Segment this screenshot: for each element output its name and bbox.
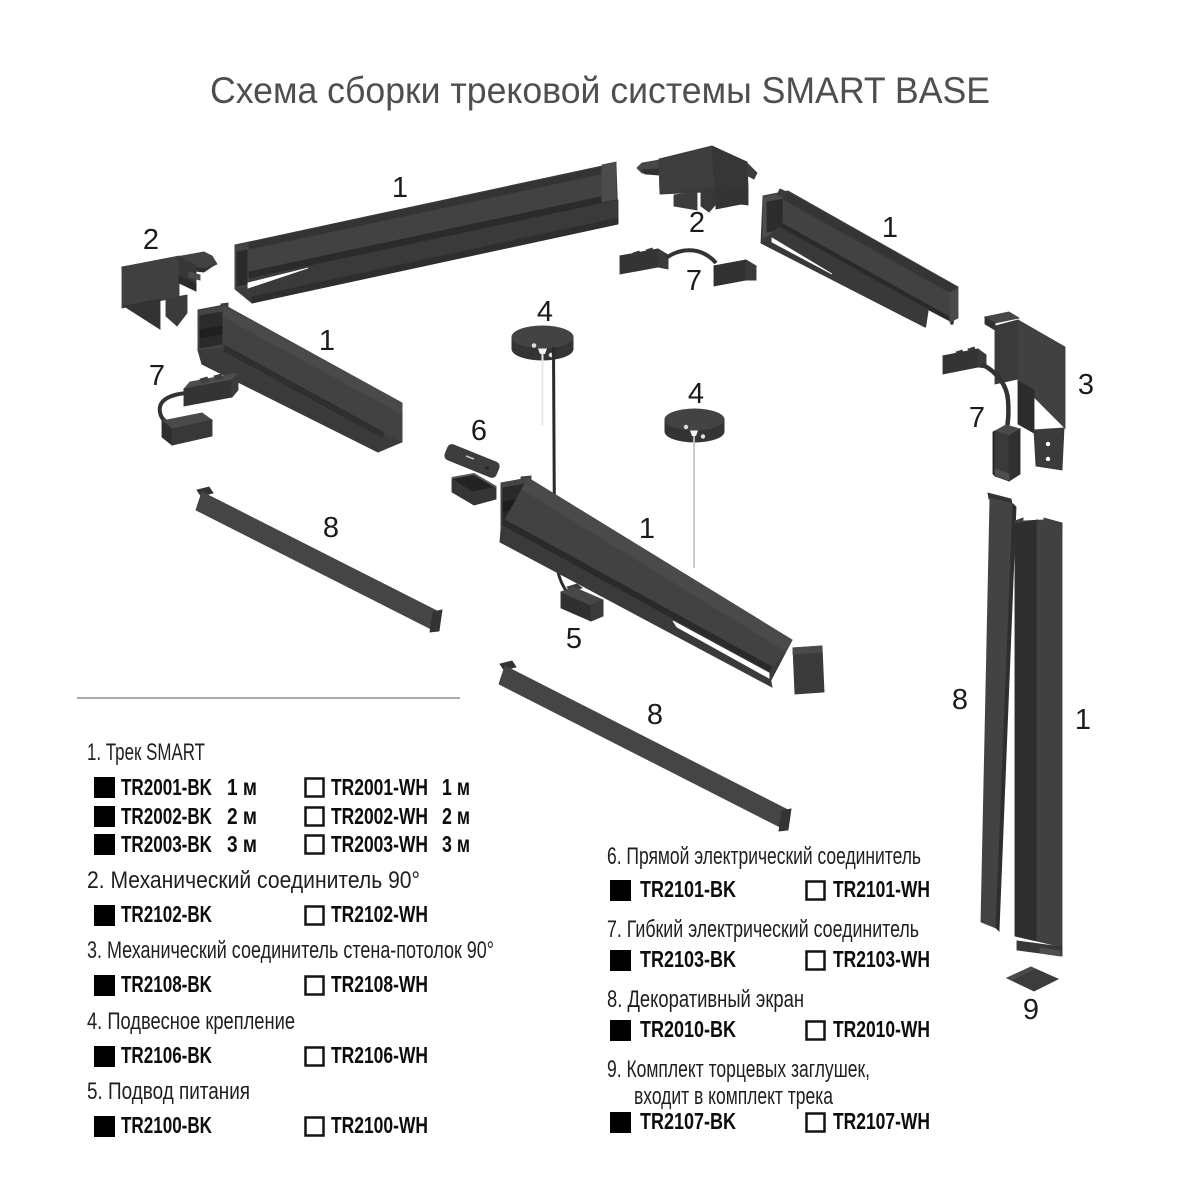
svg-text:3 м: 3 м bbox=[227, 831, 257, 857]
svg-text:1: 1 bbox=[392, 172, 408, 204]
svg-text:TR2103-WH: TR2103-WH bbox=[833, 946, 930, 972]
svg-text:4. Подвесное крепление: 4. Подвесное крепление bbox=[87, 1008, 295, 1035]
svg-text:2 м: 2 м bbox=[442, 803, 470, 829]
svg-text:6. Прямой электрический соедин: 6. Прямой электрический соединитель bbox=[607, 843, 921, 870]
svg-text:6: 6 bbox=[471, 415, 487, 447]
svg-text:1 м: 1 м bbox=[227, 774, 257, 800]
svg-text:7: 7 bbox=[686, 265, 702, 297]
svg-text:Схема сборки трековой системы: Схема сборки трековой системы SMART BASE bbox=[210, 70, 990, 111]
svg-text:8: 8 bbox=[323, 512, 339, 544]
svg-text:TR2010-BK: TR2010-BK bbox=[640, 1016, 736, 1042]
svg-text:TR2003-WH: TR2003-WH bbox=[331, 831, 428, 857]
svg-text:8: 8 bbox=[952, 684, 968, 716]
svg-text:TR2102-WH: TR2102-WH bbox=[331, 901, 428, 927]
svg-text:TR2010-WH: TR2010-WH bbox=[833, 1016, 930, 1042]
svg-text:3. Механический соединитель ст: 3. Механический соединитель стена-потоло… bbox=[87, 937, 494, 964]
svg-text:5. Подвод питания: 5. Подвод питания bbox=[87, 1078, 250, 1105]
svg-text:8. Декоративный экран: 8. Декоративный экран bbox=[607, 986, 804, 1013]
svg-text:7: 7 bbox=[149, 360, 165, 392]
svg-text:TR2003-BK: TR2003-BK bbox=[121, 831, 212, 857]
svg-text:4: 4 bbox=[537, 296, 553, 328]
svg-text:1: 1 bbox=[319, 325, 335, 357]
svg-text:2: 2 bbox=[689, 207, 705, 239]
svg-text:TR2100-BK: TR2100-BK bbox=[121, 1112, 212, 1138]
svg-text:TR2106-WH: TR2106-WH bbox=[331, 1042, 428, 1068]
svg-text:TR2101-WH: TR2101-WH bbox=[833, 876, 930, 902]
svg-text:входит в комплект трека: входит в комплект трека bbox=[634, 1083, 833, 1110]
svg-text:8: 8 bbox=[647, 699, 663, 731]
svg-text:2 м: 2 м bbox=[227, 803, 257, 829]
svg-text:1: 1 bbox=[639, 513, 655, 545]
svg-text:3 м: 3 м bbox=[442, 831, 470, 857]
svg-text:TR2106-BK: TR2106-BK bbox=[121, 1042, 212, 1068]
svg-text:TR2001-WH: TR2001-WH bbox=[331, 774, 428, 800]
svg-text:9: 9 bbox=[1023, 994, 1039, 1026]
svg-text:TR2108-BK: TR2108-BK bbox=[121, 971, 212, 997]
svg-text:TR2107-BK: TR2107-BK bbox=[640, 1108, 736, 1134]
svg-text:TR2101-BK: TR2101-BK bbox=[640, 876, 736, 902]
svg-text:TR2002-BK: TR2002-BK bbox=[121, 803, 212, 829]
svg-text:TR2002-WH: TR2002-WH bbox=[331, 803, 428, 829]
svg-text:TR2107-WH: TR2107-WH bbox=[833, 1108, 930, 1134]
svg-text:9. Комплект торцевых заглушек,: 9. Комплект торцевых заглушек, bbox=[607, 1056, 870, 1083]
svg-text:4: 4 bbox=[688, 378, 704, 410]
svg-text:TR2108-WH: TR2108-WH bbox=[331, 971, 428, 997]
svg-text:1: 1 bbox=[882, 212, 898, 244]
svg-text:TR2100-WH: TR2100-WH bbox=[331, 1112, 428, 1138]
svg-text:TR2001-BK: TR2001-BK bbox=[121, 774, 212, 800]
svg-text:1. Трек SMART: 1. Трек SMART bbox=[87, 739, 205, 766]
svg-text:1 м: 1 м bbox=[442, 774, 470, 800]
svg-text:3: 3 bbox=[1078, 369, 1094, 401]
svg-text:1: 1 bbox=[1075, 704, 1091, 736]
svg-text:TR2103-BK: TR2103-BK bbox=[640, 946, 736, 972]
svg-text:2. Механический соединитель 90: 2. Механический соединитель 90° bbox=[87, 867, 420, 894]
svg-text:TR2102-BK: TR2102-BK bbox=[121, 901, 212, 927]
svg-text:5: 5 bbox=[566, 623, 582, 655]
svg-text:7: 7 bbox=[969, 402, 985, 434]
svg-text:7. Гибкий электрический соедин: 7. Гибкий электрический соединитель bbox=[607, 916, 919, 943]
svg-text:2: 2 bbox=[143, 224, 159, 256]
